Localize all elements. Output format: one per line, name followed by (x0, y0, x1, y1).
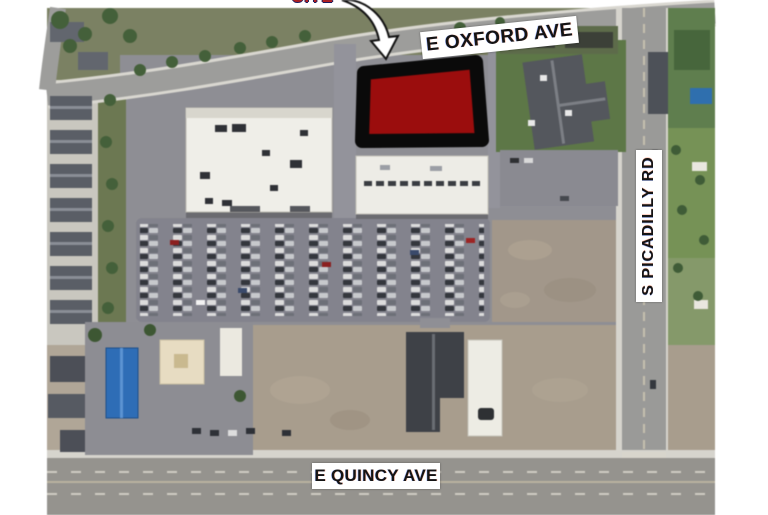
east-fields (668, 8, 715, 450)
aerial-site-map-figure: SITE E OXFORD AVE S PICADILLY RD E QUINC… (0, 0, 768, 515)
street-label-picadilly: S PICADILLY RD (636, 150, 662, 302)
site-callout-label: SITE (292, 0, 352, 6)
site-parcel-highlight (362, 62, 482, 141)
strip-retail-building (356, 156, 488, 219)
street-label-quincy: E QUINCY AVE (312, 463, 440, 489)
anchor-store-building (186, 108, 332, 218)
parking-lot (136, 218, 490, 322)
